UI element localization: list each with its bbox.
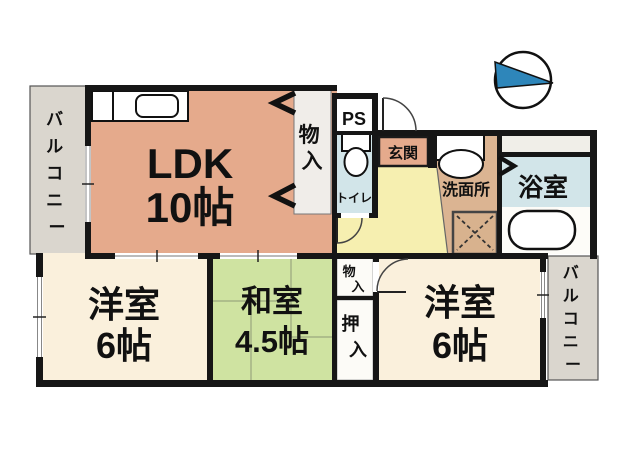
wall-toilet-east xyxy=(372,95,378,218)
door-arc-entrance xyxy=(383,98,416,131)
label-ldk-size: 10帖 xyxy=(146,184,235,231)
room-japanese xyxy=(207,253,337,387)
washing-machine-pan-icon xyxy=(453,212,497,254)
wall-bathroom-strip xyxy=(502,152,590,157)
label-japanese-name: 和室 xyxy=(241,284,303,319)
label-western-right-name: 洋室 xyxy=(424,282,496,323)
label-western-left-size: 6帖 xyxy=(96,325,152,366)
floor-plan-drawing: LDK 10帖 洋室 6帖 和室 4.5帖 洋室 6帖 PS トイレ 玄関 洗面… xyxy=(0,0,640,456)
wall-washroom-bathroom xyxy=(497,130,502,259)
bathtub-icon xyxy=(509,211,575,249)
toilet-icon xyxy=(342,133,370,176)
label-ps: PS xyxy=(342,109,366,129)
label-bathroom: 浴室 xyxy=(518,173,568,202)
wall-closet-divider xyxy=(337,296,373,300)
label-ldk-name: LDK xyxy=(147,140,233,187)
kitchen-counter-icon xyxy=(92,91,188,121)
wall-ps-bottom xyxy=(337,131,372,135)
wall-ldk-top xyxy=(85,85,337,91)
wall-entrance-east xyxy=(428,130,437,168)
wall-bottom xyxy=(36,380,548,387)
label-toilet: トイレ xyxy=(336,191,372,205)
wall-ps-top xyxy=(332,93,378,99)
wall-east xyxy=(590,130,597,259)
label-japanese-size: 4.5帖 xyxy=(235,324,309,359)
wall-hall-bottom xyxy=(337,253,548,259)
toilet-door-opening xyxy=(341,213,369,218)
wall-japanese-closet xyxy=(332,253,337,387)
label-western-left-name: 洋室 xyxy=(88,284,160,325)
label-entrance: 玄関 xyxy=(388,144,418,162)
floor-plan-canvas: LDK 10帖 洋室 6帖 和室 4.5帖 洋室 6帖 PS トイレ 玄関 洗面… xyxy=(0,0,640,456)
western-right-door-opening xyxy=(373,262,379,292)
wall-western-japanese xyxy=(207,253,213,387)
label-balcony-right: バ ル コ ニ ー xyxy=(563,264,583,374)
label-western-right-size: 6帖 xyxy=(432,325,488,366)
bathroom-top-strip xyxy=(502,136,590,152)
wall-entrance-top xyxy=(375,130,596,136)
label-washroom: 洗面所 xyxy=(442,180,490,199)
washbasin-icon xyxy=(436,133,484,178)
north-arrow-icon xyxy=(495,52,553,108)
